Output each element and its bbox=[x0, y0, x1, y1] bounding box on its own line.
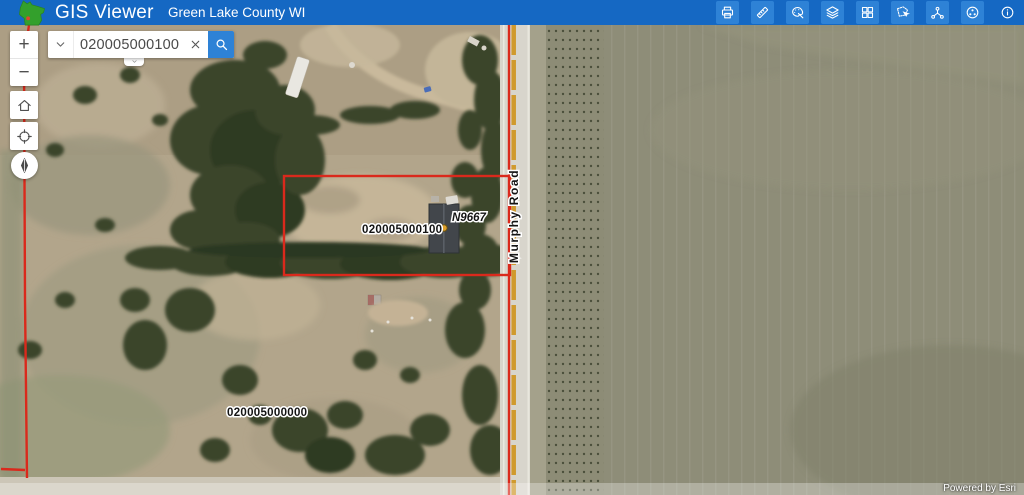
close-icon bbox=[189, 38, 202, 51]
parcel-search-box bbox=[48, 31, 234, 58]
selected-parcel-label: 020005000100 bbox=[362, 224, 442, 236]
layers-button[interactable] bbox=[821, 1, 844, 24]
zoom-out-button[interactable]: − bbox=[10, 59, 38, 86]
terrain-east-field bbox=[546, 25, 1024, 495]
basemap-grid-icon bbox=[860, 5, 875, 20]
measure-button[interactable] bbox=[751, 1, 774, 24]
layers-icon bbox=[825, 5, 840, 20]
info-button[interactable] bbox=[996, 1, 1019, 24]
share-button[interactable] bbox=[961, 1, 984, 24]
basemap-button[interactable] bbox=[856, 1, 879, 24]
road-name-label: Murphy Road bbox=[507, 169, 521, 263]
gis-viewer-app: 020005000100 N9667 Murphy Road 020005000… bbox=[0, 0, 1024, 495]
compass-button[interactable] bbox=[11, 152, 38, 179]
southwest-parcel-line bbox=[1, 469, 25, 470]
wisconsin-logo-icon bbox=[14, 0, 48, 27]
link-chart-icon bbox=[930, 5, 945, 20]
info-icon bbox=[1000, 5, 1015, 20]
link-chart-button[interactable] bbox=[926, 1, 949, 24]
county-subtitle: Green Lake County WI bbox=[168, 0, 305, 25]
locate-crosshair-icon bbox=[16, 128, 33, 145]
chevron-down-icon bbox=[54, 38, 67, 51]
search-input[interactable] bbox=[74, 31, 182, 58]
select-button[interactable] bbox=[891, 1, 914, 24]
home-icon bbox=[16, 97, 33, 114]
header-toolbar bbox=[716, 1, 1019, 24]
search-collapse-tab[interactable] bbox=[124, 58, 144, 66]
chevron-down-icon bbox=[130, 58, 139, 65]
search-icon bbox=[214, 37, 229, 52]
draw-palette-icon bbox=[790, 5, 805, 20]
compass-needle-icon bbox=[15, 156, 34, 175]
select-lasso-icon bbox=[895, 5, 910, 20]
home-extent-button[interactable] bbox=[10, 91, 38, 119]
app-title: GIS Viewer bbox=[55, 0, 154, 25]
address-point-label: N9667 bbox=[452, 212, 486, 224]
adjacent-parcel-label: 020005000000 bbox=[227, 407, 307, 419]
print-icon bbox=[720, 5, 735, 20]
zoom-in-button[interactable]: + bbox=[10, 31, 38, 58]
map-attribution: Powered by Esri bbox=[0, 483, 1024, 495]
print-button[interactable] bbox=[716, 1, 739, 24]
search-clear-button[interactable] bbox=[182, 31, 208, 58]
map-canvas[interactable]: 020005000100 N9667 Murphy Road 020005000… bbox=[0, 25, 1024, 495]
my-location-button[interactable] bbox=[10, 122, 38, 150]
share-group-icon bbox=[965, 5, 980, 20]
zoom-control: + − bbox=[10, 31, 38, 86]
measure-icon bbox=[755, 5, 770, 20]
app-header: GIS Viewer Green Lake County WI bbox=[0, 0, 1024, 25]
search-source-dropdown[interactable] bbox=[48, 31, 74, 58]
draw-button[interactable] bbox=[786, 1, 809, 24]
search-submit-button[interactable] bbox=[208, 31, 234, 58]
